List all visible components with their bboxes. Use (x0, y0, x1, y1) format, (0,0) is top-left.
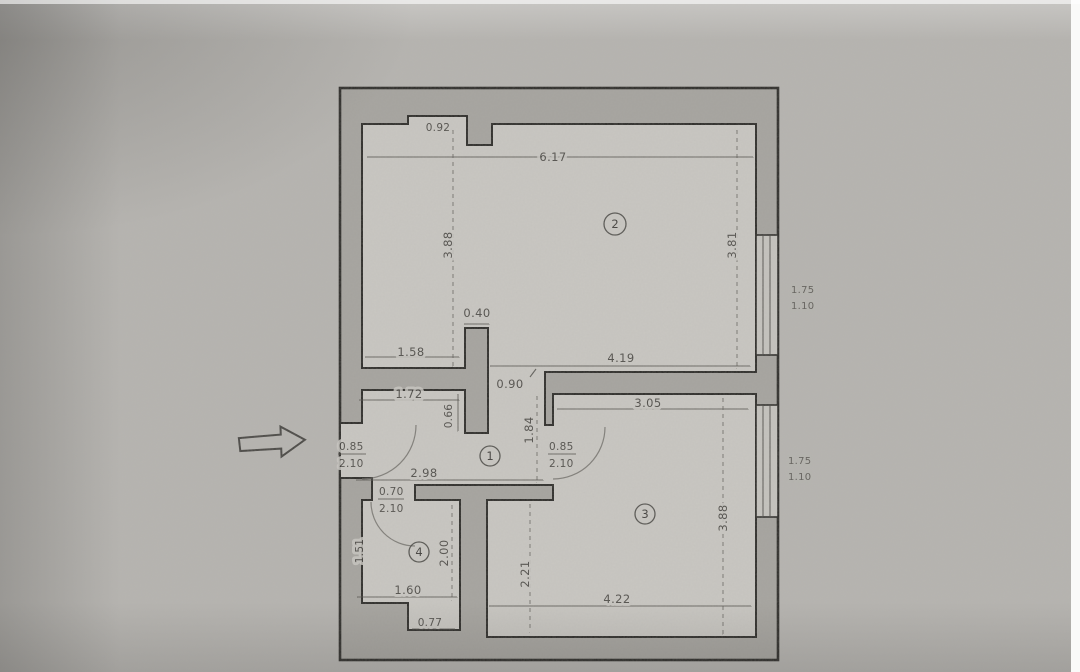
scanned-floor-plan-photo: 0.92 6.17 3.88 3.81 0.40 1.58 4.19 0.90 … (0, 0, 1080, 672)
paper-grain-texture (0, 0, 1080, 672)
floor-plan-drawing: 0.92 6.17 3.88 3.81 0.40 1.58 4.19 0.90 … (0, 0, 1080, 672)
